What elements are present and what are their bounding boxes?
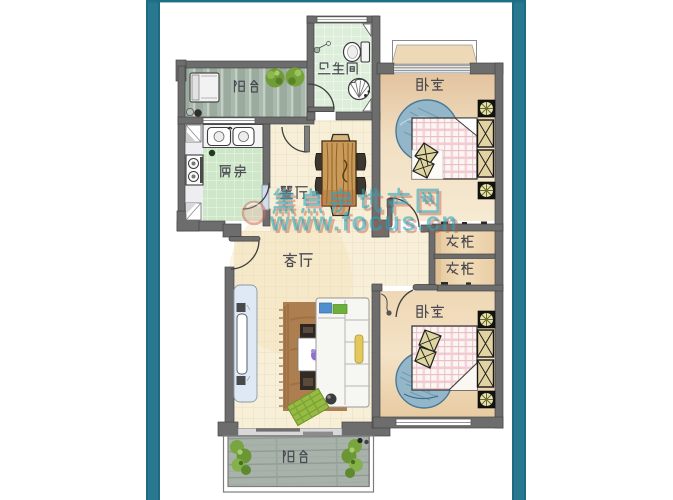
svg-text:www.focus.cn: www.focus.cn bbox=[269, 209, 459, 237]
